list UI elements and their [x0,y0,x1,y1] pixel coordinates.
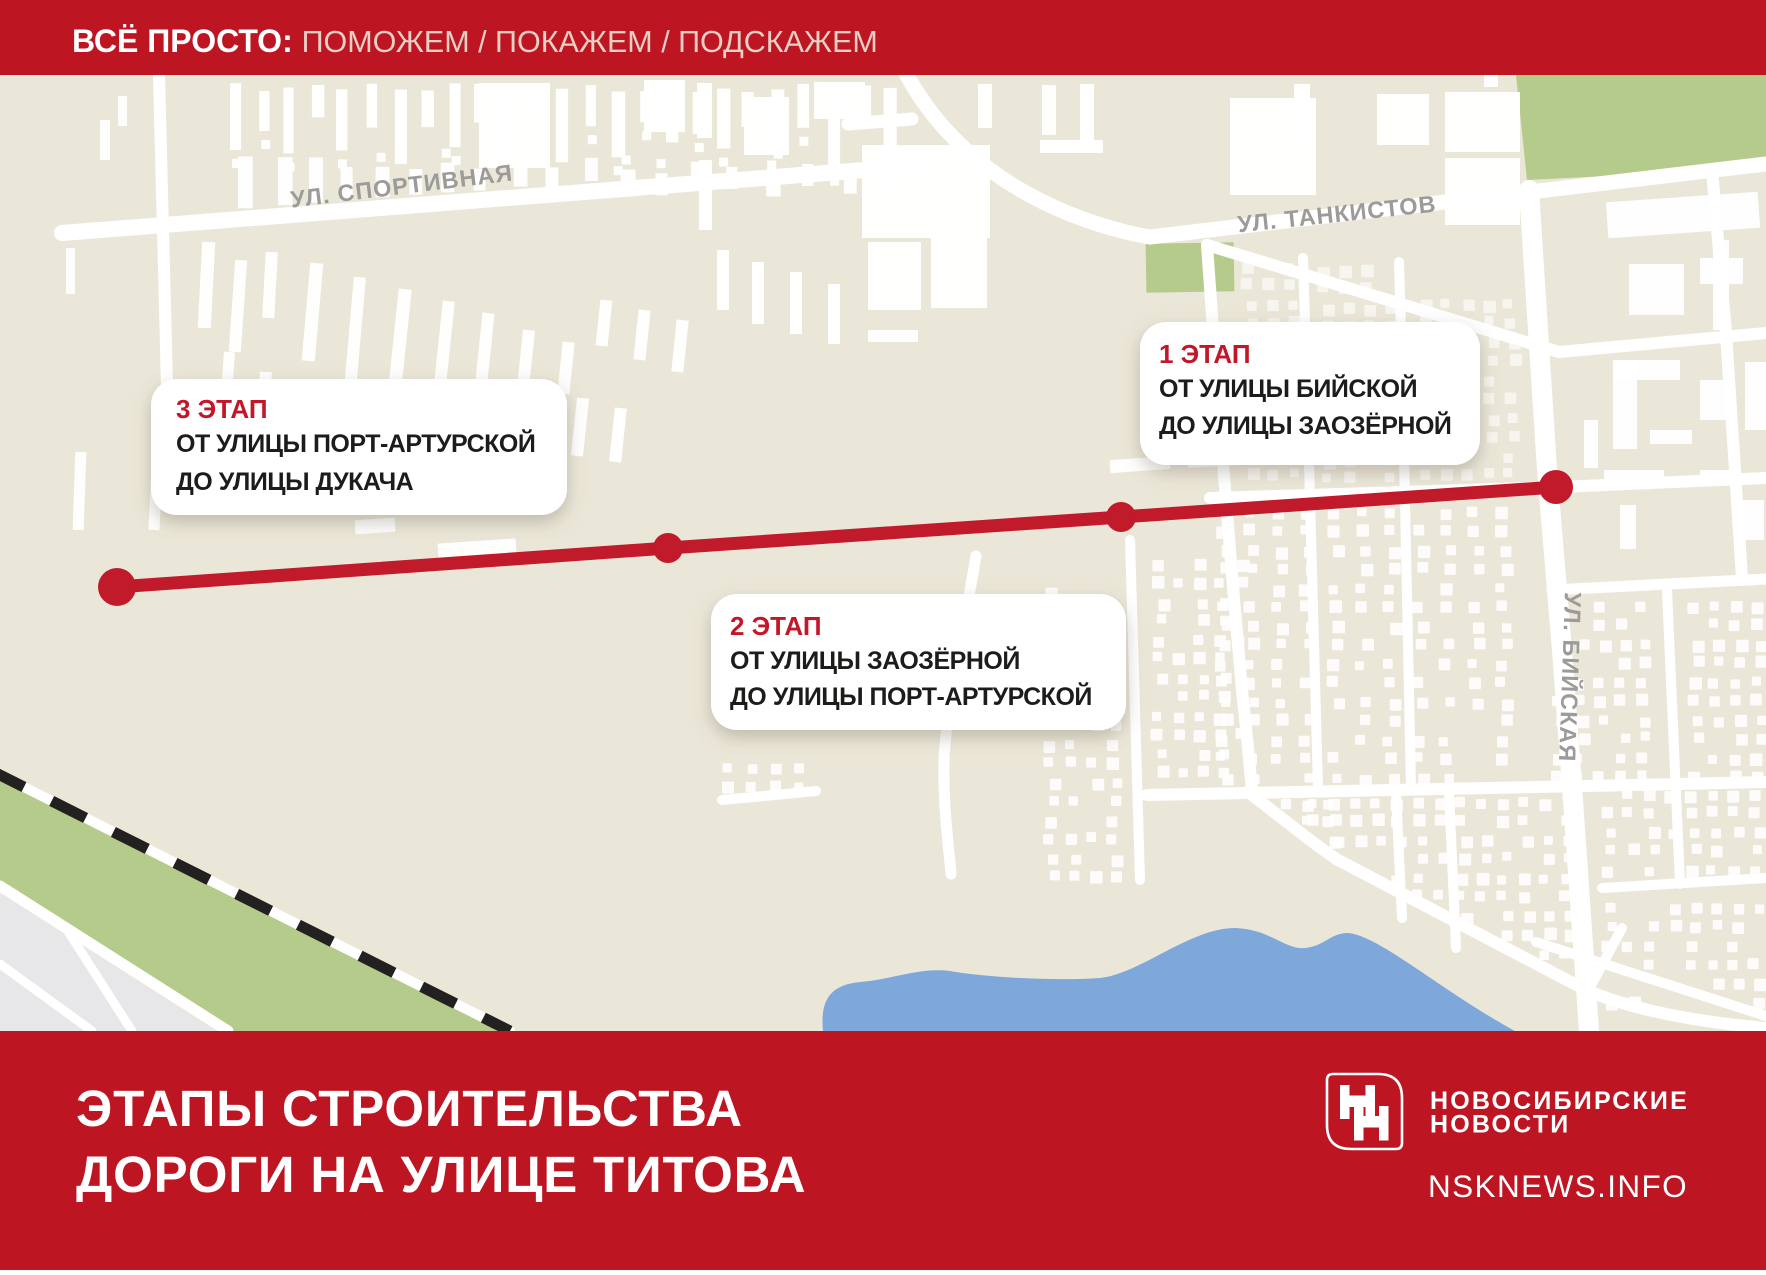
svg-text:ДО УЛИЦЫ ДУКАЧА: ДО УЛИЦЫ ДУКАЧА [176,468,414,496]
svg-text:3 ЭТАП: 3 ЭТАП [176,394,268,424]
svg-text:ВСЁ ПРОСТО: ПОМОЖЕМ / ПОКАЖЕМ: ВСЁ ПРОСТО: ПОМОЖЕМ / ПОКАЖЕМ / ПОДСКАЖЕ… [72,23,878,59]
svg-text:ДО УЛИЦЫ ЗАОЗЁРНОЙ: ДО УЛИЦЫ ЗАОЗЁРНОЙ [1159,410,1451,440]
svg-text:ОТ УЛИЦЫ ПОРТ-АРТУРСКОЙ: ОТ УЛИЦЫ ПОРТ-АРТУРСКОЙ [176,428,535,458]
svg-text:ДОРОГИ НА УЛИЦЕ ТИТОВА: ДОРОГИ НА УЛИЦЕ ТИТОВА [76,1146,806,1203]
svg-text:НОВОСТИ: НОВОСТИ [1430,1111,1570,1139]
svg-text:ОТ УЛИЦЫ ЗАОЗЁРНОЙ: ОТ УЛИЦЫ ЗАОЗЁРНОЙ [730,645,1020,675]
svg-text:2 ЭТАП: 2 ЭТАП [730,611,822,641]
svg-text:ОТ УЛИЦЫ БИЙСКОЙ: ОТ УЛИЦЫ БИЙСКОЙ [1159,373,1417,403]
svg-text:1 ЭТАП: 1 ЭТАП [1159,339,1251,369]
svg-text:ДО УЛИЦЫ ПОРТ-АРТУРСКОЙ: ДО УЛИЦЫ ПОРТ-АРТУРСКОЙ [730,681,1092,711]
svg-text:ЭТАПЫ СТРОИТЕЛЬСТВА: ЭТАПЫ СТРОИТЕЛЬСТВА [76,1080,743,1137]
svg-text:NSKNEWS.INFO: NSKNEWS.INFO [1428,1168,1688,1204]
